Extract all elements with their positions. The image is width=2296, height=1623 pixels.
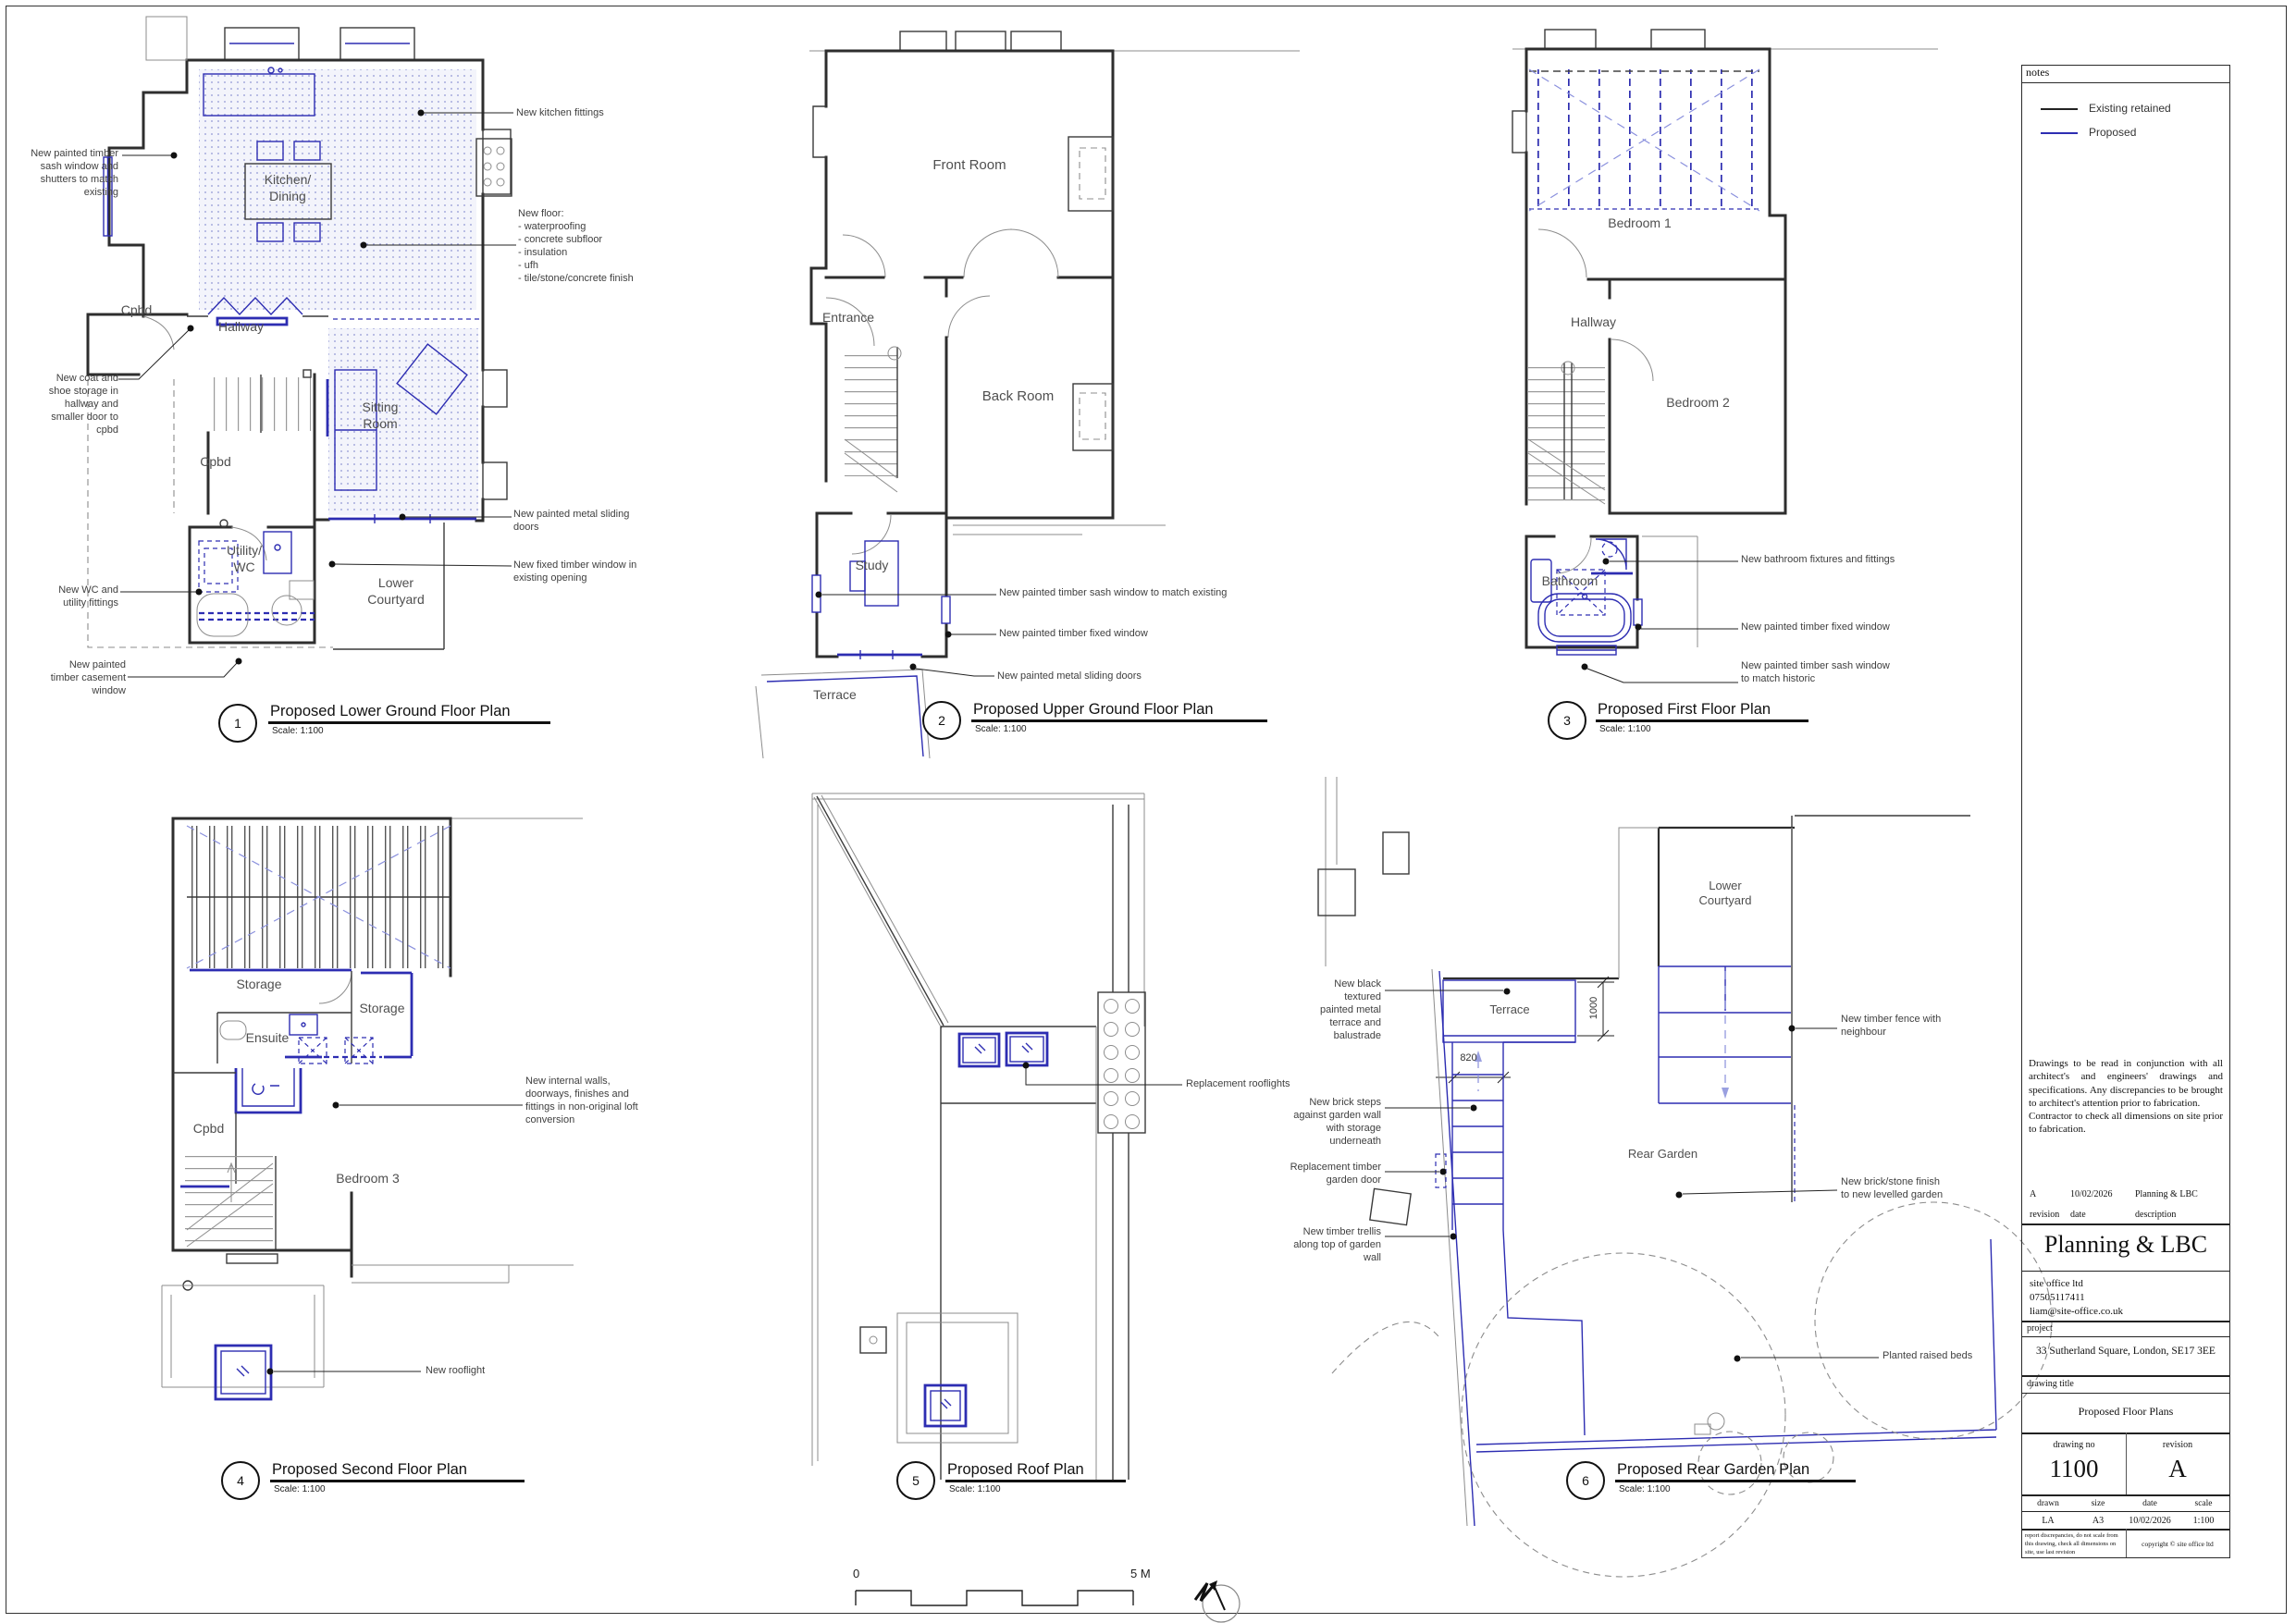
plan-3-drawing — [1503, 18, 2040, 749]
room-label-sitting-room: Sitting Room — [352, 400, 409, 432]
annotation-casement-window: New painted timber casement window — [17, 659, 126, 698]
plan-6-scale: Scale: 1:100 — [1619, 1484, 1671, 1494]
revision-header-desc: description — [2135, 1210, 2176, 1220]
revision-value: A — [2126, 1455, 2229, 1483]
plan-4-scale: Scale: 1:100 — [274, 1484, 326, 1494]
room-label-front-room: Front Room — [923, 157, 1016, 175]
notes-and-title-block: notes Existing retained Proposed Drawing… — [2021, 65, 2230, 1558]
footer-note: report discrepancies, do not scale from … — [2025, 1532, 2123, 1556]
plan-5-number-badge: 5 — [896, 1461, 935, 1500]
label-lower-courtyard-garden: Lower Courtyard — [1665, 879, 1785, 909]
room-label-hallway-ff: Hallway — [1559, 314, 1628, 331]
drawing-title-value: Proposed Floor Plans — [2022, 1405, 2229, 1419]
plan-lower-ground: Kitchen/ Dining Cpbd Hallway Cpbd Sittin… — [9, 9, 657, 731]
room-label-hallway: Hallway — [211, 319, 271, 336]
revision-header-date: date — [2070, 1210, 2086, 1220]
plan-1-scale: Scale: 1:100 — [272, 726, 324, 736]
room-label-bedroom-1: Bedroom 1 — [1596, 215, 1684, 232]
drawing-no-value: 1100 — [2022, 1455, 2126, 1483]
annotation-fixed-window: New fixed timber window in existing open… — [513, 559, 661, 585]
north-arrow-icon — [1182, 1572, 1247, 1623]
drawn-value: LA — [2022, 1516, 2074, 1526]
plan-first-floor: Bedroom 1 Hallway Bedroom 2 Bathroom New… — [1503, 18, 2040, 749]
legend-proposed-label: Proposed — [2089, 126, 2136, 139]
annotation-coat-storage: New coat and shoe storage in hallway and… — [20, 373, 118, 437]
plan-upper-ground: Front Room Entrance Back Room Study Terr… — [754, 18, 1355, 758]
notes-header: notes — [2022, 66, 2229, 83]
title-block-divider — [2126, 1432, 2127, 1494]
plan-4-title: Proposed Second Floor Plan — [272, 1461, 467, 1479]
revision-entry-date: 10/02/2026 — [2070, 1189, 2113, 1199]
plan-3-number-badge: 3 — [1548, 701, 1586, 740]
dimension-820: 820 — [1443, 1052, 1494, 1064]
plan-3-title: Proposed First Floor Plan — [1598, 701, 1771, 719]
drawing-no-label: drawing no — [2022, 1440, 2126, 1450]
plan-2-number-badge: 2 — [922, 701, 961, 740]
annotation-wc-fittings: New WC and utility fittings — [24, 584, 118, 610]
room-label-cpbd-sf: Cpbd — [183, 1121, 234, 1137]
plan-4-title-rule — [270, 1480, 525, 1482]
room-label-entrance: Entrance — [811, 310, 885, 326]
plan-4-number-badge: 4 — [221, 1461, 260, 1500]
room-label-study: Study — [846, 558, 897, 574]
project-value: 33 Sutherland Square, London, SE17 3EE — [2022, 1346, 2229, 1357]
annotation-sash-window-ff: New painted timber sash window to match … — [1741, 660, 1944, 686]
contact-info: site office ltd 07505117411 liam@site-of… — [2030, 1277, 2123, 1319]
annotation-sash-window: New painted timber sash window and shutt… — [11, 148, 118, 200]
room-label-kitchen-dining: Kitchen/ Dining — [241, 172, 334, 204]
date-value: 10/02/2026 — [2122, 1516, 2178, 1526]
annotation-terrace-balustrade: New black textured painted metal terrace… — [1270, 978, 1381, 1043]
stage-title: Planning & LBC — [2022, 1231, 2229, 1259]
annotation-planted-beds: Planted raised beds — [1882, 1350, 2021, 1363]
scale-bar-zero: 0 — [853, 1567, 859, 1580]
plan-5-title: Proposed Roof Plan — [947, 1461, 1084, 1479]
footer-divider — [2126, 1529, 2127, 1557]
scale-value: 1:100 — [2178, 1516, 2229, 1526]
annotation-internal-walls: New internal walls, doorways, finishes a… — [525, 1076, 687, 1127]
annotation-kitchen-fittings: New kitchen fittings — [516, 107, 650, 120]
plan-6-title: Proposed Rear Garden Plan — [1617, 1461, 1809, 1479]
date-label: date — [2122, 1499, 2178, 1508]
room-label-bathroom: Bathroom — [1529, 573, 1611, 590]
size-label: size — [2074, 1499, 2122, 1508]
plan-2-title: Proposed Upper Ground Floor Plan — [973, 701, 1214, 719]
room-label-storage-2: Storage — [350, 1001, 414, 1017]
plan-6-title-rule — [1615, 1480, 1856, 1482]
room-label-ensuite: Ensuite — [239, 1030, 296, 1047]
annotation-brick-stone-finish: New brick/stone finish to new levelled g… — [1841, 1176, 1989, 1202]
plan-second-floor: Storage Storage Ensuite Cpbd Bedroom 3 N… — [139, 795, 712, 1443]
label-terrace-garden: Terrace — [1474, 1002, 1546, 1017]
plan-roof: Replacement rooflights — [796, 777, 1332, 1489]
scale-bar-five: 5 M — [1130, 1567, 1151, 1580]
drawn-label: drawn — [2022, 1499, 2074, 1508]
drawing-title-label: drawing title — [2027, 1379, 2074, 1389]
copyright-note: copyright © site office ltd — [2128, 1540, 2228, 1548]
room-label-terrace: Terrace — [805, 687, 865, 704]
annotation-timber-trellis: New timber trellis along top of garden w… — [1270, 1226, 1381, 1265]
annotation-sliding-doors: New painted metal sliding doors — [513, 509, 652, 535]
label-rear-garden: Rear Garden — [1614, 1147, 1711, 1162]
revision-header-rev: revision — [2030, 1210, 2059, 1220]
room-label-utility-wc: Utility/ WC — [218, 543, 270, 575]
annotation-bathroom-fixtures: New bathroom fixtures and fittings — [1741, 554, 1944, 567]
annotation-fixed-window-ug: New painted timber fixed window — [999, 628, 1235, 641]
room-label-bedroom-3: Bedroom 3 — [324, 1171, 412, 1187]
room-label-storage-1: Storage — [227, 977, 291, 993]
plan-rear-garden: Terrace Rear Garden Lower Courtyard 1000… — [1295, 777, 2017, 1526]
plan-5-title-rule — [945, 1480, 1126, 1482]
room-label-cpbd-1: Cpbd — [111, 302, 162, 319]
plan-5-scale: Scale: 1:100 — [949, 1484, 1001, 1494]
plan-2-title-rule — [971, 719, 1267, 722]
annotation-new-rooflight: New rooflight — [426, 1365, 537, 1378]
scale-bar — [849, 1583, 1154, 1616]
size-value: A3 — [2074, 1516, 2122, 1526]
plan-1-title-rule — [268, 721, 550, 724]
plan-1-number-badge: 1 — [218, 704, 257, 743]
annotation-garden-door: Replacement timber garden door — [1270, 1162, 1381, 1187]
project-label: project — [2027, 1323, 2053, 1334]
annotation-fixed-window-ff: New painted timber fixed window — [1741, 621, 1944, 634]
revision-entry-desc: Planning & LBC — [2135, 1189, 2198, 1199]
plan-1-title: Proposed Lower Ground Floor Plan — [270, 703, 511, 720]
revision-label: revision — [2126, 1440, 2229, 1450]
disclaimer-text: Drawings to be read in conjunction with … — [2029, 1057, 2223, 1137]
plan-2-scale: Scale: 1:100 — [975, 724, 1027, 734]
room-label-cpbd-2: Cpbd — [188, 454, 243, 471]
plan-5-drawing — [796, 777, 1332, 1489]
annotation-sliding-doors-ug: New painted metal sliding doors — [997, 670, 1233, 683]
plan-3-title-rule — [1596, 719, 1808, 722]
legend-existing-label: Existing retained — [2089, 102, 2171, 115]
annotation-sash-window-ug: New painted timber sash window to match … — [999, 587, 1235, 600]
legend-proposed-line — [2041, 132, 2078, 134]
annotation-brick-steps: New brick steps against garden wall with… — [1270, 1097, 1381, 1149]
room-label-lower-courtyard: Lower Courtyard — [358, 575, 434, 608]
legend-existing-line — [2041, 108, 2078, 110]
plan-6-number-badge: 6 — [1566, 1461, 1605, 1500]
room-label-bedroom-2: Bedroom 2 — [1654, 395, 1742, 412]
revision-entry-rev: A — [2030, 1189, 2036, 1199]
annotation-timber-fence: New timber fence with neighbour — [1841, 1014, 1989, 1039]
room-label-back-room: Back Room — [974, 388, 1062, 406]
plan-3-scale: Scale: 1:100 — [1599, 724, 1651, 734]
dimension-1000: 1000 — [1588, 980, 1599, 1036]
scale-label: scale — [2178, 1499, 2229, 1508]
annotation-new-floor: New floor: - waterproofing - concrete su… — [518, 208, 657, 286]
